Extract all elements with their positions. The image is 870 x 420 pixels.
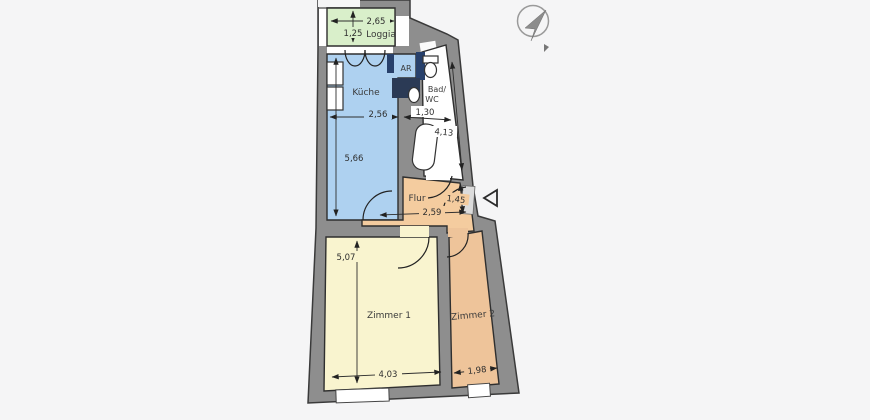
dim-loggia-depth: 1,25 — [344, 29, 363, 39]
label-zimmer1: Zimmer 1 — [367, 311, 411, 321]
dim-zimmer1-depth: 5,07 — [337, 253, 356, 263]
label-flur: Flur — [408, 194, 425, 204]
dim-zimmer2-width: 1,98 — [467, 365, 487, 377]
ar-wall-stub — [387, 54, 394, 73]
bad-door-opening — [426, 172, 450, 180]
dim-kueche-depth: 5,66 — [345, 154, 364, 164]
floor-plan: 2,65 1,25 2,56 5,66 1,30 4,13 2,59 1,45 … — [0, 0, 870, 420]
label-kueche: Küche — [352, 88, 380, 98]
sink-icon — [409, 88, 420, 103]
zimmer1-door-opening — [400, 226, 429, 237]
label-loggia: Loggia — [366, 30, 396, 40]
dim-loggia-width: 2,65 — [367, 17, 386, 27]
zimmer2-door-opening — [448, 228, 468, 237]
kitchen-counter-icon — [327, 62, 343, 85]
dim-flur-width: 2,59 — [423, 208, 442, 218]
dim-bad-width: 1,30 — [416, 108, 435, 118]
dim-bad-depth: 4,13 — [434, 127, 454, 139]
loggia-kueche-gap — [327, 46, 393, 54]
loggia-gap-left — [319, 9, 327, 46]
kitchen-sink-icon — [327, 87, 343, 110]
label-bad-line1: Bad/ — [428, 85, 446, 94]
wall-gap-top-left — [318, 0, 360, 7]
toilet-icon — [425, 63, 437, 78]
window-zimmer1 — [336, 388, 389, 403]
loggia-gap-right — [396, 16, 409, 46]
window-zimmer2 — [468, 383, 491, 398]
label-ar: AR — [400, 64, 411, 73]
label-bad-line2: WC — [425, 95, 439, 104]
dim-zimmer1-width: 4,03 — [379, 370, 398, 380]
dim-kueche-width: 2,56 — [369, 110, 388, 120]
